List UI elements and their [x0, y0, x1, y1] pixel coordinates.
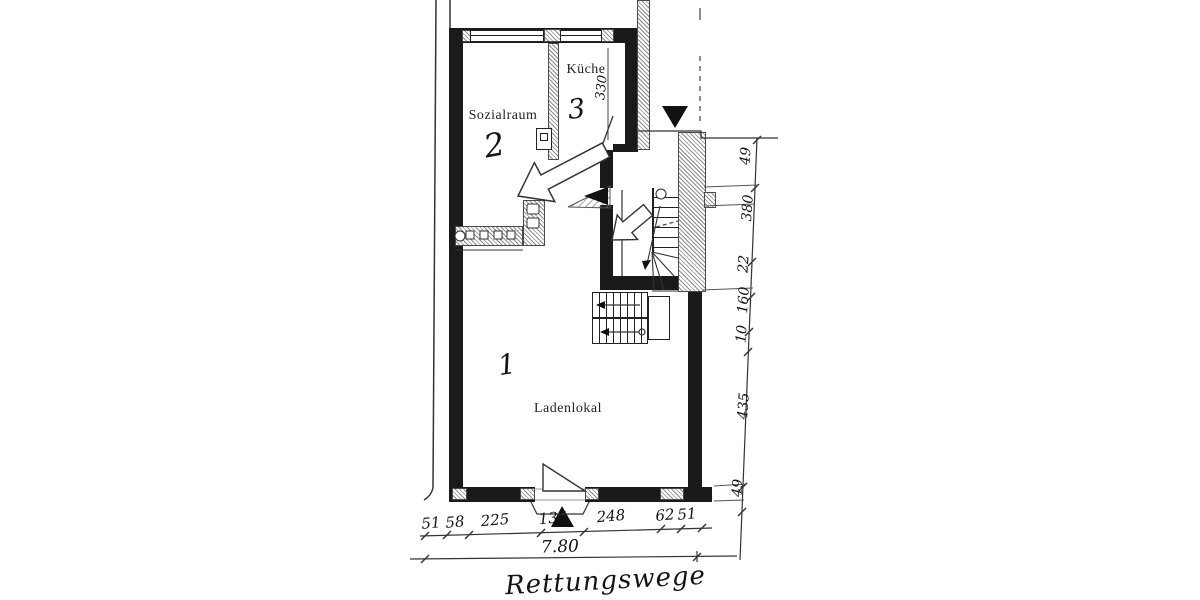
- top-entrance-arrow-icon: [662, 106, 688, 128]
- floor-plan-scan: Sozialraum 2 Küche 3 330 Ladenlokal 1 49…: [0, 0, 1200, 600]
- main-entrance-door: [531, 464, 589, 514]
- boundary-line-left: [424, 0, 450, 500]
- winder-stair-detail: [647, 189, 678, 291]
- winder-stair-down-arrowhead: [642, 260, 651, 270]
- stair-arrowhead-upper: [596, 301, 605, 309]
- dimension-label: 225: [477, 510, 512, 531]
- room-label-sozialraum: Sozialraum: [452, 108, 554, 124]
- door-leaf: [543, 464, 585, 491]
- dimension-label: 49: [737, 137, 755, 174]
- stair-arrowhead-lower: [600, 328, 609, 336]
- dimension-label: 160: [735, 281, 753, 318]
- dimension-label: 49: [729, 469, 747, 506]
- dimension-label: 10: [733, 315, 751, 352]
- dimension-label: 135: [535, 508, 570, 529]
- building-edge-top-right: [638, 8, 778, 138]
- dimension-label: 435: [735, 387, 753, 424]
- dimension-label: 58: [437, 512, 472, 533]
- room-label-ladenlokal: Ladenlokal: [518, 401, 618, 417]
- dimension-label: 22: [735, 245, 753, 282]
- room-number-kueche: 3: [566, 93, 586, 126]
- escape-route-arrow-icon: [612, 205, 653, 240]
- dimension-label: 248: [593, 506, 628, 527]
- dimension-total-width: 7.80: [530, 536, 591, 558]
- sanitary-fixtures: [455, 204, 539, 250]
- dimension-label: 380: [739, 189, 757, 226]
- dimension-label: 51: [669, 504, 704, 525]
